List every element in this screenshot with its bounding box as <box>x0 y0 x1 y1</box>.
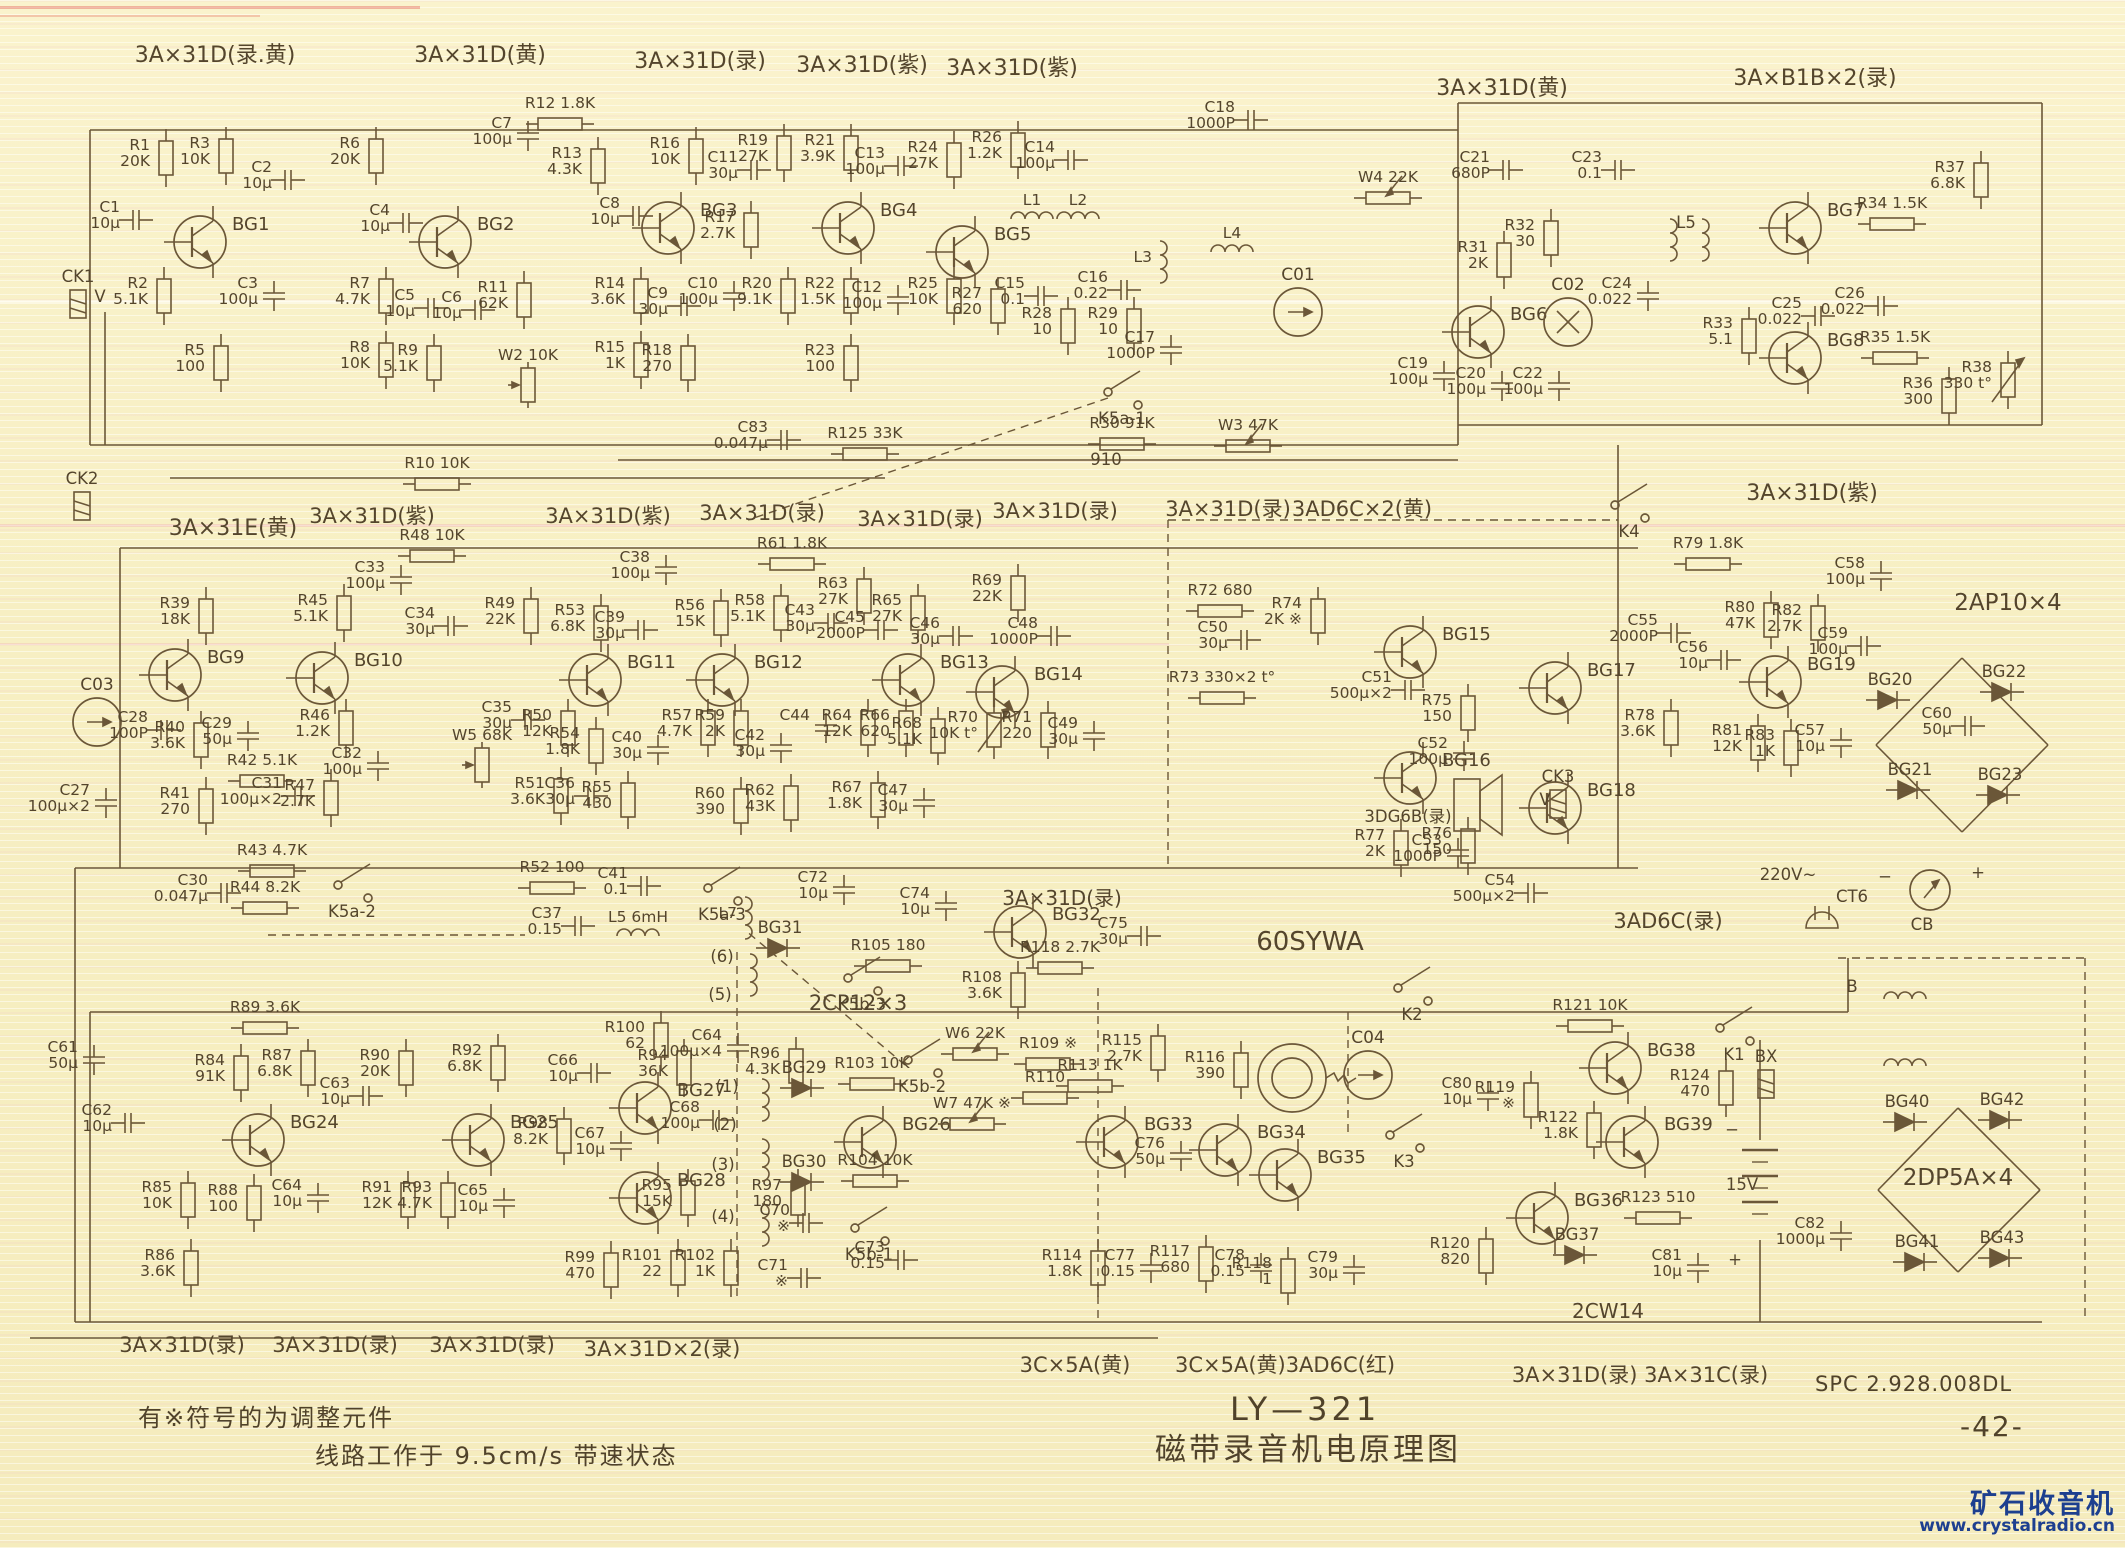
svg-text:※: ※ <box>775 1272 788 1290</box>
type-label: 3AD6C(录) <box>1613 909 1722 933</box>
comp-C49: C4930μ <box>1047 714 1105 751</box>
svg-text:C03: C03 <box>80 675 114 695</box>
svg-text:3A×31D(紫): 3A×31D(紫) <box>1746 481 1878 506</box>
svg-text:30μ: 30μ <box>1198 634 1228 652</box>
svg-text:390: 390 <box>1195 1064 1225 1082</box>
svg-text:390: 390 <box>695 800 725 818</box>
svg-text:1.5K: 1.5K <box>800 290 836 308</box>
svg-text:2.7K: 2.7K <box>700 224 736 242</box>
svg-text:3A×31D(录): 3A×31D(录) <box>634 49 766 74</box>
type-label: 3A×31D(录) <box>699 501 825 525</box>
comp-BG7: BG7 <box>1759 192 1864 264</box>
svg-text:BG23: BG23 <box>1978 765 2023 784</box>
comp-C64: C6410μ <box>271 1176 329 1213</box>
svg-text:R72 680: R72 680 <box>1187 581 1252 599</box>
comp-R79: R79 1.8K <box>1673 534 1744 570</box>
svg-text:2000P: 2000P <box>1609 627 1658 645</box>
svg-text:BG37: BG37 <box>1555 1225 1600 1244</box>
type-label: 2AP10×4 <box>1954 590 2061 616</box>
comp-BG11: BG11 <box>559 644 676 716</box>
type-label: 3AD6C×2(黄) <box>1292 497 1432 521</box>
svg-text:L3: L3 <box>1134 248 1153 266</box>
svg-text:BG12: BG12 <box>754 652 803 673</box>
schematic-page: 3A×31D(录.黄)3A×31D(黄)3A×31D(录)3A×31D(紫)3A… <box>0 0 2125 1548</box>
svg-text:50μ: 50μ <box>202 730 232 748</box>
svg-text:100μ: 100μ <box>611 564 651 582</box>
comp-R122: R1221.8K <box>1538 1101 1601 1159</box>
comp-R24: R2427K <box>908 131 962 189</box>
comp-C60: C6050μ <box>1921 704 1985 738</box>
svg-text:5.1K: 5.1K <box>293 607 329 625</box>
svg-text:10μ: 10μ <box>90 214 120 232</box>
comp-C66: C6610μ <box>547 1051 611 1085</box>
svg-text:10μ: 10μ <box>1442 1090 1472 1108</box>
comp-−: − <box>1725 1120 1739 1139</box>
svg-text:3A×31D(录) 3A×31C(录): 3A×31D(录) 3A×31C(录) <box>1512 1363 1768 1387</box>
svg-text:10μ: 10μ <box>360 217 390 235</box>
type-label: 3A×31D(录) <box>1165 497 1291 521</box>
svg-text:500μ×2: 500μ×2 <box>1330 684 1392 702</box>
svg-text:270: 270 <box>160 800 190 818</box>
svg-text:(4): (4) <box>711 1207 734 1226</box>
comp-W2: W2 10K <box>498 346 559 408</box>
svg-text:30μ: 30μ <box>595 624 625 642</box>
comp-motor <box>1258 1044 1356 1112</box>
svg-text:10μ: 10μ <box>82 1117 112 1135</box>
svg-text:BG9: BG9 <box>207 647 244 668</box>
comp-220V~: 220V~ <box>1760 865 1817 884</box>
svg-text:620: 620 <box>860 722 890 740</box>
svg-text:2CW14: 2CW14 <box>1572 1299 1644 1323</box>
comp-BG42: BG42 <box>1978 1090 2024 1129</box>
svg-text:2.7K: 2.7K <box>280 792 316 810</box>
svg-text:10μ: 10μ <box>900 900 930 918</box>
comp-R32: R3230 <box>1505 209 1559 267</box>
svg-text:10K: 10K <box>650 150 681 168</box>
svg-text:3.6K: 3.6K <box>510 790 546 808</box>
svg-text:R48 10K: R48 10K <box>399 526 465 544</box>
svg-text:BG39: BG39 <box>1664 1114 1713 1135</box>
comp-L3: L3 <box>1134 241 1168 283</box>
comp-R102: R1021K <box>675 1239 738 1297</box>
svg-text:L7: L7 <box>719 904 738 922</box>
svg-text:R35 1.5K: R35 1.5K <box>1860 328 1931 346</box>
svg-text:10K: 10K <box>908 290 939 308</box>
svg-text:3.6K: 3.6K <box>967 984 1003 1002</box>
comp-C67: C6710μ <box>574 1124 632 1161</box>
svg-text:1.2K: 1.2K <box>295 722 331 740</box>
comp-coil <box>1884 1059 1926 1066</box>
svg-text:500μ×2: 500μ×2 <box>1453 887 1515 905</box>
svg-text:K2: K2 <box>1401 1005 1422 1024</box>
svg-text:50μ: 50μ <box>1135 1150 1165 1168</box>
comp-R15: R151K <box>595 331 649 389</box>
comp-C21: C21680P <box>1451 148 1523 182</box>
svg-text:10μ: 10μ <box>432 304 462 322</box>
svg-text:30μ: 30μ <box>612 744 642 762</box>
svg-text:8.2K: 8.2K <box>513 1130 549 1148</box>
comp-CB: CB <box>1911 915 1934 934</box>
comp-R73: R73 330×2 t° <box>1169 668 1276 704</box>
svg-text:BG13: BG13 <box>940 652 989 673</box>
comp-K4: K4 <box>1611 484 1649 541</box>
comp-R83: R831K <box>1745 719 1799 777</box>
comp-R31: R312K <box>1458 231 1512 289</box>
comp-R19: R1927K <box>738 124 792 182</box>
svg-text:BG36: BG36 <box>1574 1190 1623 1211</box>
svg-text:L1: L1 <box>1023 191 1042 209</box>
comp-R86: R863.6K <box>140 1239 198 1297</box>
svg-text:10μ: 10μ <box>590 210 620 228</box>
title-main: 磁带录音机电原理图 <box>1155 1424 1461 1469</box>
svg-text:BG18: BG18 <box>1587 780 1636 801</box>
svg-text:1000P: 1000P <box>1106 344 1155 362</box>
svg-text:10μ: 10μ <box>320 1090 350 1108</box>
comp-C01: C01 <box>1274 265 1322 336</box>
svg-text:62: 62 <box>625 1034 645 1052</box>
svg-text:30: 30 <box>1515 232 1535 250</box>
comp-(1): (1) <box>715 1077 738 1096</box>
comp-C04: C04 <box>1344 1028 1392 1099</box>
svg-text:100: 100 <box>805 357 835 375</box>
type-label: 2DP5A×4 <box>1903 1165 2014 1191</box>
svg-text:30μ: 30μ <box>638 300 668 318</box>
svg-text:BG30: BG30 <box>782 1152 827 1171</box>
svg-text:(6): (6) <box>710 947 733 966</box>
svg-text:30μ: 30μ <box>482 714 512 732</box>
comp-R2: R25.1K <box>113 267 171 325</box>
comp-C24: C240.022 <box>1588 274 1659 311</box>
comp-R108: R1083.6K <box>962 961 1025 1019</box>
svg-text:R43 4.7K: R43 4.7K <box>237 841 308 859</box>
svg-text:R44 8.2K: R44 8.2K <box>230 878 301 896</box>
comp-C73: C730.15 <box>850 1238 918 1272</box>
svg-text:BX: BX <box>1755 1047 1778 1066</box>
comp-C53: C531000P <box>1393 831 1469 868</box>
svg-text:BG43: BG43 <box>1980 1228 2025 1247</box>
comp-BG2: BG2 <box>409 206 514 278</box>
comp-L7: L7 <box>719 897 753 939</box>
svg-text:330 t°: 330 t° <box>1944 374 1992 392</box>
svg-text:C01: C01 <box>1281 265 1315 285</box>
comp-spk <box>1454 775 1502 835</box>
comp-R118: R118 2.7K <box>1020 938 1101 974</box>
svg-text:18K: 18K <box>160 610 191 628</box>
comp-R104: R104 10K <box>837 1151 913 1187</box>
comp-plug <box>1806 906 1838 928</box>
type-label: 3A×31D(录) <box>119 1333 245 1357</box>
type-label: 3A×31D(黄) <box>1436 76 1568 101</box>
svg-text:BG22: BG22 <box>1982 662 2027 681</box>
comp-W7: W7 47K ※ <box>933 1094 1011 1130</box>
comp-R116: R116390 <box>1185 1041 1248 1099</box>
comp-R98: R988.2K <box>513 1107 571 1165</box>
svg-text:2K: 2K <box>705 722 726 740</box>
comp-C4: C410μ <box>360 201 423 235</box>
type-label: 3C×5A(黄)3AD6C(红) <box>1175 1353 1395 1377</box>
svg-text:R105 180: R105 180 <box>851 936 926 954</box>
comp-coilv <box>762 1139 769 1181</box>
comp-C27: C27100μ×2 <box>28 781 117 818</box>
svg-text:BG32: BG32 <box>1052 904 1101 925</box>
comp-R120: R120820 <box>1430 1227 1493 1285</box>
svg-text:BG6: BG6 <box>1510 304 1547 325</box>
comp-R33: R335.1 <box>1703 307 1757 365</box>
svg-text:3A×31D(紫): 3A×31D(紫) <box>545 504 671 528</box>
comp-C1: C110μ <box>90 198 153 232</box>
svg-text:R118 2.7K: R118 2.7K <box>1020 938 1101 956</box>
svg-text:R79 1.8K: R79 1.8K <box>1673 534 1744 552</box>
svg-text:220V~: 220V~ <box>1760 865 1817 884</box>
type-label: 3A×31D(录) <box>634 49 766 74</box>
comp-−: − <box>1878 867 1892 886</box>
svg-text:220: 220 <box>1002 724 1032 742</box>
svg-text:3A×31D(录): 3A×31D(录) <box>1165 497 1291 521</box>
svg-text:60SYWA: 60SYWA <box>1256 927 1364 957</box>
comp-BG4: BG4 <box>812 192 917 264</box>
svg-text:2AP10×4: 2AP10×4 <box>1954 590 2061 616</box>
svg-text:R123 510: R123 510 <box>1621 1188 1696 1206</box>
comp-C59: C59100μ <box>1809 624 1881 658</box>
comp-C15: C150.1 <box>994 274 1058 308</box>
svg-text:BG2: BG2 <box>477 214 514 235</box>
svg-text:BG8: BG8 <box>1827 330 1864 351</box>
svg-text:100μ: 100μ <box>1409 750 1449 768</box>
type-label: 3A×31D(紫) <box>946 56 1078 81</box>
svg-text:W7 47K ※: W7 47K ※ <box>933 1094 1011 1112</box>
comp-R5: R5100 <box>175 334 228 392</box>
comp-R67: R671.8K <box>827 771 885 829</box>
svg-text:10μ: 10μ <box>458 1197 488 1215</box>
comp-C18: C181000P <box>1186 98 1268 132</box>
svg-text:3A×31D(录): 3A×31D(录) <box>272 1333 398 1357</box>
svg-text:100μ: 100μ <box>473 130 513 148</box>
svg-text:1K: 1K <box>1755 742 1776 760</box>
svg-text:2K ※: 2K ※ <box>1264 610 1302 628</box>
svg-text:※: ※ <box>777 1217 790 1235</box>
svg-text:1000P: 1000P <box>989 630 1038 648</box>
svg-text:100μ: 100μ <box>1826 570 1866 588</box>
svg-text:3A×31D×2(录): 3A×31D×2(录) <box>584 1337 741 1361</box>
comp-R58: R585.1K <box>730 584 788 642</box>
comp-C10: C10100μ <box>679 274 745 311</box>
svg-text:(3): (3) <box>711 1155 734 1174</box>
svg-text:BG10: BG10 <box>354 650 403 671</box>
svg-text:10K: 10K <box>340 354 371 372</box>
comp-C19: C19100μ <box>1389 354 1455 391</box>
comp-R39: R3918K <box>160 587 214 645</box>
svg-text:BG5: BG5 <box>994 224 1031 245</box>
svg-text:15K: 15K <box>642 1192 673 1210</box>
type-label: 3A×31D(紫) <box>1746 481 1878 506</box>
comp-BG30: BG30 <box>780 1152 826 1191</box>
note-tape-speed: 线路工作于 9.5cm/s 带速状态 <box>315 1436 678 1471</box>
svg-text:22K: 22K <box>972 587 1003 605</box>
type-label: 2CW14 <box>1572 1299 1644 1323</box>
comp-C72: C7210μ <box>797 868 855 905</box>
svg-text:R125 33K: R125 33K <box>827 424 903 442</box>
svg-text:K5a-2: K5a-2 <box>328 902 376 921</box>
svg-text:22K: 22K <box>485 610 516 628</box>
svg-text:R34 1.5K: R34 1.5K <box>1857 194 1928 212</box>
comp-R124: R124470 <box>1670 1059 1733 1117</box>
svg-text:0.15: 0.15 <box>1100 1262 1135 1280</box>
svg-text:10K: 10K <box>142 1194 173 1212</box>
svg-text:BG29: BG29 <box>782 1058 827 1077</box>
svg-text:−: − <box>1878 867 1892 886</box>
svg-text:12K: 12K <box>822 722 853 740</box>
svg-text:15K: 15K <box>675 612 706 630</box>
svg-text:3A×B1B×2(录): 3A×B1B×2(录) <box>1733 66 1896 91</box>
page-number: -42- <box>1960 1410 2024 1443</box>
svg-text:K3: K3 <box>1393 1152 1414 1171</box>
comp-BG40: BG40 <box>1883 1092 1929 1131</box>
svg-text:0.15: 0.15 <box>527 920 562 938</box>
svg-text:5.1: 5.1 <box>1708 330 1733 348</box>
comp-L5: L5 <box>1676 213 1696 232</box>
comp-BG41: BG41 <box>1893 1232 1939 1271</box>
comp-R11: R1162K <box>478 271 532 329</box>
svg-text:27K: 27K <box>908 154 939 172</box>
svg-text:36K: 36K <box>638 1062 669 1080</box>
svg-text:100μ: 100μ <box>1447 380 1487 398</box>
comp-C2: C210μ <box>242 158 305 192</box>
svg-text:2K: 2K <box>1468 254 1489 272</box>
comp-C41: C410.1 <box>597 864 661 898</box>
svg-text:620: 620 <box>952 300 982 318</box>
svg-text:20K: 20K <box>360 1062 391 1080</box>
svg-text:3.9K: 3.9K <box>800 147 836 165</box>
svg-text:B: B <box>1846 977 1857 996</box>
svg-text:R42 5.1K: R42 5.1K <box>227 751 298 769</box>
svg-text:1.8K: 1.8K <box>545 740 581 758</box>
svg-text:270: 270 <box>642 357 672 375</box>
svg-text:BG24: BG24 <box>290 1112 339 1133</box>
comp-C37: C370.15 <box>527 904 595 938</box>
svg-text:15V: 15V <box>1726 1175 1759 1194</box>
svg-text:100μ: 100μ <box>1504 380 1544 398</box>
comp-R93: R934.7K <box>397 1171 455 1229</box>
comp-C76: C7650μ <box>1134 1134 1192 1171</box>
svg-text:L2: L2 <box>1069 191 1088 209</box>
comp-BG37: BG37 <box>1553 1225 1599 1264</box>
svg-text:6.8K: 6.8K <box>447 1057 483 1075</box>
svg-text:0.1: 0.1 <box>603 880 628 898</box>
svg-text:9.1K: 9.1K <box>737 290 773 308</box>
svg-text:R52 100: R52 100 <box>519 858 584 876</box>
svg-text:100: 100 <box>208 1197 238 1215</box>
comp-BG19: BG19 <box>1739 646 1856 718</box>
svg-text:3A×31D(录): 3A×31D(录) <box>429 1333 555 1357</box>
svg-text:1: 1 <box>1262 1270 1272 1288</box>
svg-text:10μ: 10μ <box>1795 737 1825 755</box>
comp-coilv <box>762 1079 769 1121</box>
comp-R85: R8510K <box>142 1171 196 1229</box>
svg-text:R10 10K: R10 10K <box>404 454 470 472</box>
comp-C8: C810μ <box>590 194 653 228</box>
svg-text:680P: 680P <box>1451 164 1490 182</box>
comp-C65: C6510μ <box>457 1181 515 1218</box>
svg-text:50μ: 50μ <box>1922 720 1952 738</box>
svg-text:R30 91K: R30 91K <box>1089 414 1155 432</box>
svg-text:3A×31E(黄): 3A×31E(黄) <box>169 516 298 541</box>
svg-text:50μ: 50μ <box>48 1054 78 1072</box>
comp-R34: R34 1.5K <box>1857 194 1928 230</box>
svg-text:100μ: 100μ <box>661 1114 701 1132</box>
comp-R12: R12 1.8K <box>525 94 596 130</box>
svg-text:0.022: 0.022 <box>1588 290 1632 308</box>
comp-C81: C8110μ <box>1651 1246 1709 1283</box>
svg-text:1000P: 1000P <box>1186 114 1235 132</box>
comp-+: + <box>1728 1250 1742 1269</box>
svg-text:CK2: CK2 <box>66 469 99 488</box>
svg-text:K1: K1 <box>1723 1045 1744 1064</box>
comp-BX: BX <box>1755 1047 1778 1098</box>
svg-text:100μ×2: 100μ×2 <box>220 790 282 808</box>
comp-R62: R6243K <box>745 774 799 832</box>
svg-text:K5b-3: K5b-3 <box>838 995 886 1014</box>
svg-text:W6 22K: W6 22K <box>945 1024 1006 1042</box>
comp-R125: R125 33K <box>827 424 903 460</box>
svg-text:BG4: BG4 <box>880 200 917 221</box>
svg-text:C04: C04 <box>1351 1028 1385 1048</box>
svg-text:4.7K: 4.7K <box>397 1194 433 1212</box>
svg-text:27K: 27K <box>818 590 849 608</box>
svg-text:BG33: BG33 <box>1144 1114 1193 1135</box>
type-label: 3A×31D(录) <box>272 1333 398 1357</box>
comp-R87: R876.8K <box>257 1039 315 1097</box>
comp-C30: C300.047μ <box>154 871 241 905</box>
svg-text:100μ×2: 100μ×2 <box>28 797 90 815</box>
svg-text:4.7K: 4.7K <box>657 722 693 740</box>
svg-text:10μ: 10μ <box>798 884 828 902</box>
svg-text:−: − <box>1725 1120 1739 1139</box>
svg-text:3AD6C×2(黄): 3AD6C×2(黄) <box>1292 497 1432 521</box>
svg-text:100μ: 100μ <box>346 574 386 592</box>
svg-text:910: 910 <box>1090 450 1122 469</box>
comp-R37: R376.8K <box>1930 151 1988 209</box>
comp-BG43: BG43 <box>1978 1228 2024 1267</box>
comp-C42: C4230μ <box>734 726 792 763</box>
comp-R20: R209.1K <box>737 267 795 325</box>
comp-C58: C58100μ <box>1826 554 1892 591</box>
type-label: 3A×31D(录) <box>429 1333 555 1357</box>
comp-R10: R10 10K <box>403 454 471 490</box>
svg-text:100μ: 100μ <box>1389 370 1429 388</box>
svg-text:CT6: CT6 <box>1836 887 1868 906</box>
svg-text:150: 150 <box>1422 707 1452 725</box>
comp-BG23: BG23 <box>1976 765 2022 804</box>
svg-text:W2 10K: W2 10K <box>498 346 559 364</box>
svg-text:12K: 12K <box>1712 737 1743 755</box>
comp-R17: R172.7K <box>700 201 758 259</box>
svg-text:※: ※ <box>1502 1094 1515 1112</box>
comp-R70: R7010K t° <box>929 701 1010 759</box>
svg-text:10K t°: 10K t° <box>929 724 978 742</box>
comp-L2: L2 <box>1057 191 1099 219</box>
svg-text:V: V <box>1539 790 1551 809</box>
comp-R90: R9020K <box>360 1039 414 1097</box>
svg-text:470: 470 <box>1680 1082 1710 1100</box>
comp-W6: W6 22K <box>941 1024 1009 1060</box>
comp-CT6: CT6 <box>1836 887 1868 906</box>
svg-text:+: + <box>1728 1250 1742 1269</box>
type-label: 3A×B1B×2(录) <box>1733 66 1896 91</box>
svg-text:(1): (1) <box>715 1077 738 1096</box>
type-label: 3A×31D(录) <box>857 507 983 531</box>
svg-text:W3 47K: W3 47K <box>1218 416 1279 434</box>
comp-R45: R455.1K <box>293 584 351 642</box>
